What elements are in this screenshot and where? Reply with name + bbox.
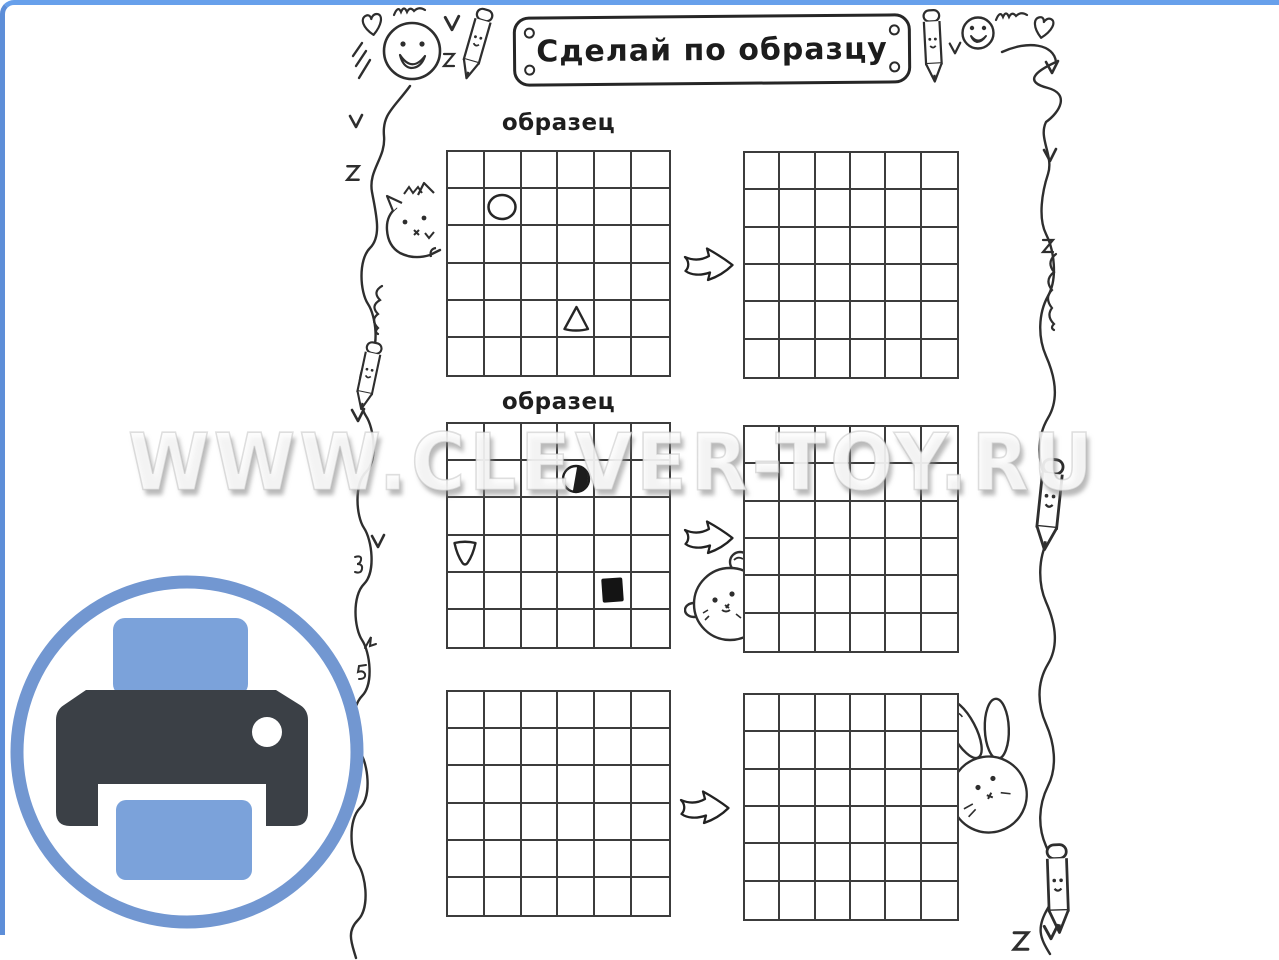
grid-cell bbox=[595, 226, 632, 263]
grid-cell bbox=[558, 610, 595, 647]
grid-cell bbox=[485, 692, 522, 729]
grid-cell bbox=[780, 614, 815, 651]
grid-cell bbox=[632, 766, 669, 803]
grid-cell bbox=[816, 539, 851, 576]
grid-cell bbox=[522, 804, 559, 841]
grid-cell bbox=[595, 841, 632, 878]
grid-cell bbox=[522, 152, 559, 189]
grid-cell bbox=[485, 766, 522, 803]
grid-cell bbox=[595, 804, 632, 841]
grid-cell bbox=[886, 770, 921, 807]
grid-cell bbox=[780, 732, 815, 769]
grid-cell bbox=[485, 301, 522, 338]
grid-cell bbox=[816, 576, 851, 613]
grid-cell bbox=[886, 265, 921, 302]
grid-cell bbox=[485, 573, 522, 610]
grid-cell bbox=[522, 189, 559, 226]
answer-grid bbox=[743, 693, 959, 921]
squiggle-icon bbox=[392, 2, 428, 20]
grid-cell bbox=[851, 265, 886, 302]
grid-cell bbox=[485, 729, 522, 766]
checkmark-icon bbox=[948, 40, 962, 56]
grid-cell bbox=[448, 573, 485, 610]
grid-cell bbox=[448, 610, 485, 647]
grid-cell bbox=[485, 152, 522, 189]
arrow bbox=[678, 787, 732, 831]
grid-cell bbox=[632, 729, 669, 766]
banner-title: Сделай по образцу bbox=[516, 16, 909, 83]
grid-cell bbox=[851, 732, 886, 769]
grid-cell bbox=[886, 844, 921, 881]
grid-cell bbox=[816, 882, 851, 919]
grid-cell bbox=[922, 302, 957, 339]
grid-cell bbox=[558, 804, 595, 841]
sample-grid bbox=[446, 150, 671, 377]
grid-cell bbox=[922, 614, 957, 651]
grid-cell bbox=[816, 302, 851, 339]
title-banner: Сделай по образцу bbox=[513, 13, 912, 86]
grid-cell bbox=[448, 841, 485, 878]
grid-cell bbox=[851, 882, 886, 919]
grid-cell bbox=[522, 338, 559, 375]
bunny-icon bbox=[950, 682, 1060, 857]
grid-cell bbox=[448, 189, 485, 226]
grid-cell bbox=[851, 340, 886, 377]
screw-icon bbox=[889, 24, 900, 35]
grid-cell bbox=[851, 576, 886, 613]
grid-cell bbox=[595, 692, 632, 729]
grid-cell bbox=[632, 264, 669, 301]
triangle-up-shape bbox=[561, 304, 591, 332]
grid-cell bbox=[632, 226, 669, 263]
grid-cell bbox=[558, 338, 595, 375]
checkmark-icon bbox=[1042, 922, 1060, 942]
grid-cell bbox=[632, 536, 669, 573]
checkmark-icon bbox=[348, 112, 364, 130]
grid-cell bbox=[745, 807, 780, 844]
grid-cell bbox=[522, 766, 559, 803]
hatch-scribble-icon bbox=[350, 40, 374, 82]
grid-cell bbox=[816, 228, 851, 265]
grid-cell bbox=[595, 301, 632, 338]
heart-icon bbox=[1028, 10, 1059, 44]
grid-cell bbox=[745, 695, 780, 732]
sample-label: образец bbox=[446, 389, 671, 415]
grid-cell bbox=[851, 153, 886, 190]
grid-cell bbox=[595, 189, 632, 226]
arrow-icon bbox=[682, 517, 736, 557]
grid-cell bbox=[558, 301, 595, 338]
grid-cell bbox=[632, 573, 669, 610]
grid-cell bbox=[632, 692, 669, 729]
squiggle-icon bbox=[344, 162, 362, 184]
grid-cell bbox=[922, 695, 957, 732]
grid-cell bbox=[595, 152, 632, 189]
grid-cell bbox=[851, 807, 886, 844]
grid-cell bbox=[745, 153, 780, 190]
grid-cell bbox=[632, 301, 669, 338]
grid-cell bbox=[886, 228, 921, 265]
grid-cell bbox=[595, 729, 632, 766]
grid-cell bbox=[485, 804, 522, 841]
grid-cell bbox=[886, 190, 921, 227]
checkmark-icon bbox=[443, 14, 461, 32]
grid-cell bbox=[558, 264, 595, 301]
grid-cell bbox=[816, 153, 851, 190]
grid-cell bbox=[886, 732, 921, 769]
grid-cell bbox=[632, 841, 669, 878]
grid-cell bbox=[632, 878, 669, 915]
grid-cell bbox=[558, 152, 595, 189]
pencil-icon bbox=[914, 7, 952, 87]
grid-cell bbox=[595, 536, 632, 573]
heart-icon bbox=[357, 8, 387, 39]
grid-cell bbox=[558, 692, 595, 729]
grid-cell bbox=[780, 539, 815, 576]
grid-cell bbox=[745, 190, 780, 227]
grid-cell bbox=[922, 844, 957, 881]
grid-cell bbox=[558, 729, 595, 766]
filled-square-shape bbox=[599, 575, 627, 605]
grid-cell bbox=[780, 302, 815, 339]
grid-cell bbox=[522, 610, 559, 647]
grid-cell bbox=[816, 340, 851, 377]
grid-cell bbox=[922, 732, 957, 769]
checkmark-icon bbox=[370, 532, 386, 550]
grid-cell bbox=[558, 878, 595, 915]
grid-cell bbox=[632, 610, 669, 647]
grid-cell bbox=[886, 576, 921, 613]
grid-cell bbox=[522, 692, 559, 729]
grid-cell bbox=[522, 264, 559, 301]
watermark-text: WWW.CLEVER-TOY.RU bbox=[128, 417, 1097, 508]
grid-cell bbox=[851, 190, 886, 227]
grid-cell bbox=[922, 228, 957, 265]
triangle-down-shape bbox=[451, 539, 479, 567]
grid-cell bbox=[780, 695, 815, 732]
grid-cell bbox=[816, 770, 851, 807]
squiggle-icon bbox=[368, 284, 388, 336]
worksheet-page: Сделай по образцу образецобразец WWW.CLE… bbox=[0, 0, 1279, 960]
grid-cell bbox=[886, 340, 921, 377]
grid-cell bbox=[745, 770, 780, 807]
grid-cell bbox=[745, 340, 780, 377]
grid-cell bbox=[780, 576, 815, 613]
grid-cell bbox=[485, 610, 522, 647]
grid-cell bbox=[448, 878, 485, 915]
grid-cell bbox=[522, 878, 559, 915]
grid-cell bbox=[632, 804, 669, 841]
grid-cell bbox=[886, 695, 921, 732]
grid-cell bbox=[851, 770, 886, 807]
grid-cell bbox=[485, 841, 522, 878]
grid-cell bbox=[922, 190, 957, 227]
grid-cell bbox=[780, 882, 815, 919]
grid-cell bbox=[485, 338, 522, 375]
cat-icon bbox=[384, 178, 450, 272]
grid-cell bbox=[851, 695, 886, 732]
grid-cell bbox=[816, 614, 851, 651]
grid-cell bbox=[595, 573, 632, 610]
grid-cell bbox=[780, 190, 815, 227]
grid-cell bbox=[448, 264, 485, 301]
grid-cell bbox=[745, 576, 780, 613]
grid-cell bbox=[485, 189, 522, 226]
arrow bbox=[682, 517, 736, 561]
grid-cell bbox=[485, 264, 522, 301]
checkmark-icon bbox=[1042, 146, 1058, 164]
arrow-icon bbox=[678, 787, 732, 827]
grid-cell bbox=[851, 844, 886, 881]
grid-cell bbox=[851, 614, 886, 651]
grid-cell bbox=[922, 153, 957, 190]
print-button[interactable] bbox=[0, 560, 380, 940]
screw-icon bbox=[889, 61, 900, 72]
grid-cell bbox=[595, 766, 632, 803]
grid-cell bbox=[886, 882, 921, 919]
grid-cell bbox=[558, 536, 595, 573]
grid-cell bbox=[448, 536, 485, 573]
grid-cell bbox=[558, 766, 595, 803]
grid-cell bbox=[851, 539, 886, 576]
grid-cell bbox=[816, 844, 851, 881]
grid-cell bbox=[745, 732, 780, 769]
grid-cell bbox=[522, 841, 559, 878]
screw-icon bbox=[524, 28, 535, 39]
grid-cell bbox=[745, 265, 780, 302]
grid-cell bbox=[448, 152, 485, 189]
grid-cell bbox=[886, 807, 921, 844]
sample-label: образец bbox=[446, 110, 671, 136]
grid-cell bbox=[448, 766, 485, 803]
grid-cell bbox=[485, 536, 522, 573]
grid-cell bbox=[851, 228, 886, 265]
grid-cell bbox=[595, 338, 632, 375]
grid-cell bbox=[745, 844, 780, 881]
grid-cell bbox=[922, 265, 957, 302]
grid-cell bbox=[595, 610, 632, 647]
screw-icon bbox=[524, 65, 535, 76]
grid-cell bbox=[448, 301, 485, 338]
grid-cell bbox=[816, 732, 851, 769]
grid-cell bbox=[448, 338, 485, 375]
grid-cell bbox=[448, 804, 485, 841]
arrow bbox=[682, 244, 736, 288]
grid-cell bbox=[922, 340, 957, 377]
grid-cell bbox=[558, 841, 595, 878]
grid-cell bbox=[745, 614, 780, 651]
grid-cell bbox=[816, 190, 851, 227]
grid-cell bbox=[780, 340, 815, 377]
squiggle-icon bbox=[994, 6, 1030, 26]
grid-cell bbox=[522, 226, 559, 263]
grid-cell bbox=[745, 228, 780, 265]
grid-cell bbox=[522, 729, 559, 766]
arrow-icon bbox=[682, 244, 736, 284]
grid-cell bbox=[448, 692, 485, 729]
grid-cell bbox=[522, 536, 559, 573]
grid-cell bbox=[816, 695, 851, 732]
grid-cell bbox=[448, 226, 485, 263]
grid-cell bbox=[922, 770, 957, 807]
grid-cell bbox=[595, 264, 632, 301]
grid-cell bbox=[886, 153, 921, 190]
grid-cell bbox=[632, 338, 669, 375]
grid-cell bbox=[632, 152, 669, 189]
grid-cell bbox=[886, 614, 921, 651]
smiley-face-icon bbox=[380, 13, 446, 87]
grid-cell bbox=[745, 302, 780, 339]
grid-cell bbox=[558, 573, 595, 610]
grid-cell bbox=[851, 302, 886, 339]
grid-cell bbox=[522, 573, 559, 610]
grid-cell bbox=[780, 153, 815, 190]
grid-cell bbox=[922, 539, 957, 576]
grid-cell bbox=[886, 539, 921, 576]
grid-cell bbox=[780, 265, 815, 302]
grid-cell bbox=[922, 807, 957, 844]
grid-cell bbox=[816, 265, 851, 302]
sample-grid bbox=[446, 690, 671, 917]
squiggle-icon bbox=[1042, 252, 1062, 332]
grid-cell bbox=[886, 302, 921, 339]
grid-cell bbox=[485, 878, 522, 915]
grid-cell bbox=[558, 226, 595, 263]
grid-cell bbox=[632, 189, 669, 226]
grid-cell bbox=[485, 226, 522, 263]
grid-cell bbox=[780, 807, 815, 844]
grid-cell bbox=[448, 729, 485, 766]
grid-cell bbox=[745, 539, 780, 576]
answer-grid bbox=[743, 151, 959, 379]
grid-cell bbox=[816, 807, 851, 844]
squiggle-icon bbox=[1010, 928, 1032, 954]
grid-cell bbox=[745, 882, 780, 919]
grid-cell bbox=[780, 844, 815, 881]
grid-cell bbox=[922, 576, 957, 613]
grid-cell bbox=[922, 882, 957, 919]
print-icon bbox=[0, 560, 380, 940]
grid-cell bbox=[558, 189, 595, 226]
grid-cell bbox=[780, 770, 815, 807]
grid-cell bbox=[780, 228, 815, 265]
circle-outline-shape bbox=[486, 193, 518, 221]
grid-cell bbox=[595, 878, 632, 915]
smiley-face-icon bbox=[958, 12, 998, 54]
grid-cell bbox=[522, 301, 559, 338]
